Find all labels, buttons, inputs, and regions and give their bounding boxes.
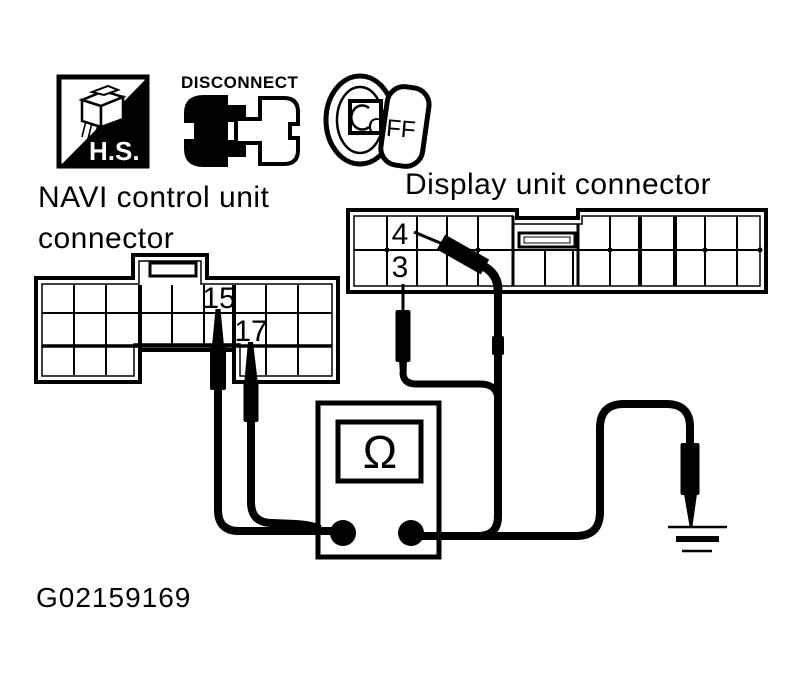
ground-icon bbox=[668, 527, 727, 551]
lead-ground bbox=[413, 404, 700, 536]
ground-probe-body bbox=[681, 443, 700, 495]
ground-probe-needle bbox=[684, 494, 697, 526]
display-connector-label: Display unit connector bbox=[405, 168, 711, 201]
wire-4 bbox=[478, 288, 498, 536]
wire-17 bbox=[251, 420, 320, 529]
hs-icon: H.S. bbox=[59, 77, 147, 166]
navi-connector: 15 17 bbox=[36, 255, 338, 382]
wire-ground bbox=[413, 404, 690, 536]
probe-15-body bbox=[210, 346, 226, 390]
disconnect-label: DISCONNECT bbox=[181, 73, 299, 92]
wire-4-joint bbox=[492, 336, 504, 355]
probe-3-body bbox=[396, 310, 411, 362]
navi-connector-label-line1: NAVI control unit bbox=[38, 181, 270, 214]
lead-pin3 bbox=[396, 284, 499, 401]
figure-id: G02159169 bbox=[36, 582, 191, 613]
wiring-diagram: H.S. DISCONNECT OFF NAVI control unit co… bbox=[0, 0, 809, 678]
ohmmeter-terminal-left bbox=[330, 520, 356, 546]
display-latch bbox=[519, 233, 575, 247]
display-pin-4: 4 bbox=[392, 218, 409, 251]
key-off-label: OFF bbox=[366, 113, 416, 144]
disconnect-icon: DISCONNECT bbox=[181, 73, 299, 167]
ohmmeter-terminal-right bbox=[398, 520, 424, 546]
display-connector: 4 3 bbox=[348, 210, 766, 292]
wire-3 bbox=[403, 372, 498, 401]
ohm-symbol: Ω bbox=[363, 426, 397, 478]
display-pin-3: 3 bbox=[392, 251, 409, 284]
probe-3-taper bbox=[399, 360, 407, 374]
navi-connector-label-line2: connector bbox=[38, 222, 174, 255]
ignition-off-icon: OFF bbox=[326, 76, 431, 169]
hs-label: H.S. bbox=[89, 136, 140, 166]
probe-17-body bbox=[244, 380, 259, 422]
navi-latch bbox=[150, 263, 196, 276]
wiring-diagram-page: H.S. DISCONNECT OFF NAVI control unit co… bbox=[0, 0, 809, 678]
